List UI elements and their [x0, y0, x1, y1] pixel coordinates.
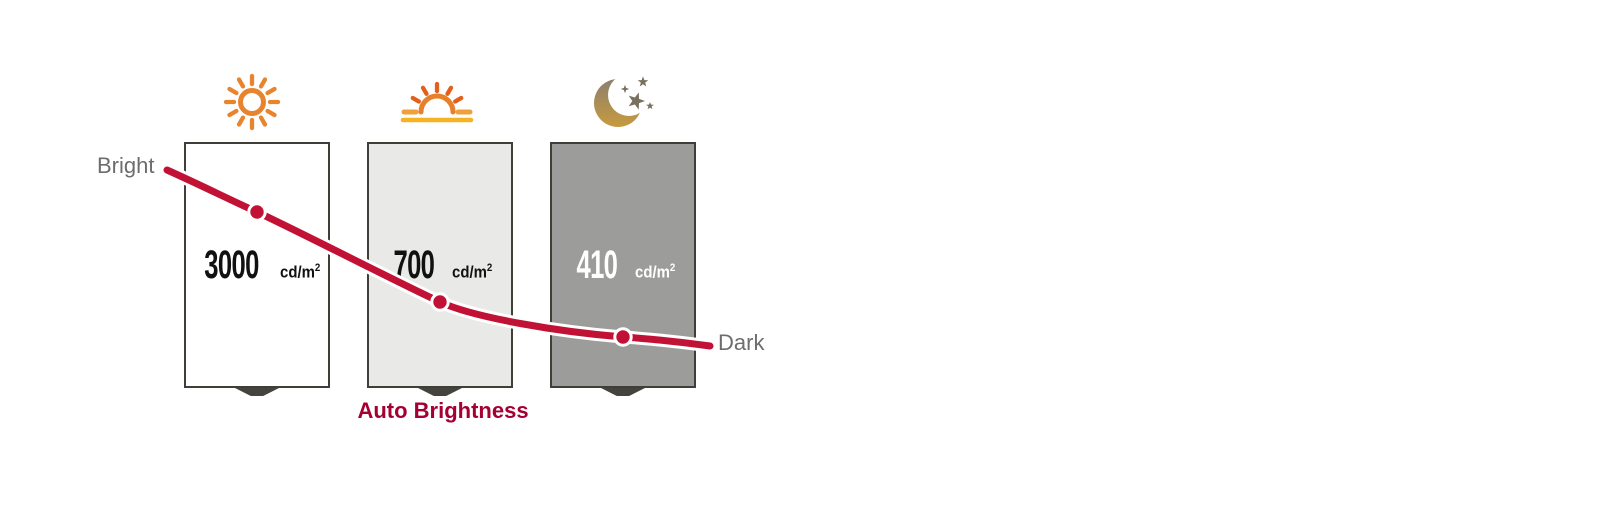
- display-panel-dusk: 700 cd/m2: [367, 142, 513, 388]
- brightness-value: 410: [577, 245, 618, 285]
- brightness-unit: cd/m2: [452, 263, 492, 281]
- brightness-unit: cd/m2: [635, 263, 675, 281]
- auto-brightness-caption: Auto Brightness: [343, 398, 543, 424]
- display-panel-night: 410 cd/m2: [550, 142, 696, 388]
- panel-stand: [418, 388, 462, 396]
- brightness-reading: 3000 cd/m2: [189, 245, 326, 285]
- panel-stand: [601, 388, 645, 396]
- brightness-value: 700: [394, 245, 435, 285]
- sun-icon: [220, 70, 284, 134]
- auto-brightness-diagram: 3000 cd/m2 700 cd/m2 410 cd/m2 Bright Da…: [0, 0, 1600, 509]
- brightness-unit: cd/m2: [280, 263, 320, 281]
- brightness-reading: 700 cd/m2: [382, 245, 498, 285]
- sunrise-icon: [399, 72, 475, 124]
- brightness-value: 3000: [204, 245, 258, 285]
- panel-stand: [235, 388, 279, 396]
- bright-label: Bright: [97, 155, 154, 177]
- display-panel-daylight: 3000 cd/m2: [184, 142, 330, 388]
- dark-label: Dark: [718, 332, 764, 354]
- moon-stars-icon: [582, 66, 662, 136]
- brightness-reading: 410 cd/m2: [565, 245, 681, 285]
